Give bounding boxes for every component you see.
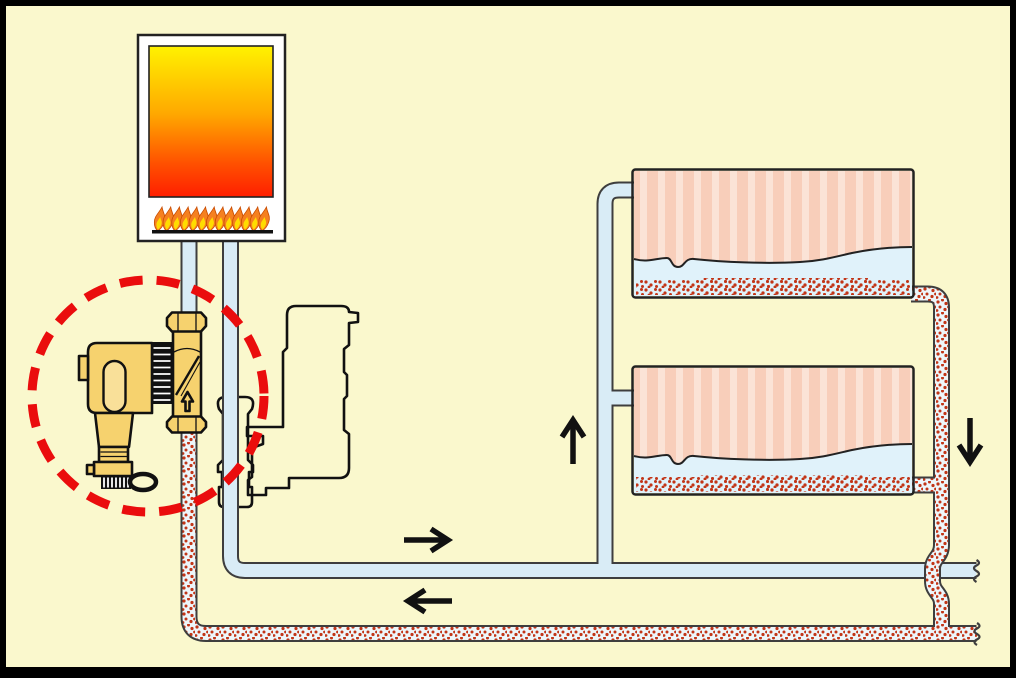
filter-thread-collar [99, 447, 128, 462]
boiler-heat-gradient [149, 46, 273, 197]
diagram-stage: Central heating system diagram with inli… [0, 0, 1016, 678]
filter-drain-nub [87, 465, 94, 474]
sludge-deposit-dense [700, 475, 870, 492]
filter-end-cap [79, 356, 88, 380]
filter-drain-body [94, 462, 132, 476]
burner-line [152, 230, 273, 234]
filter-vent-capsule [104, 361, 126, 412]
sludge-deposit-dense [700, 278, 870, 295]
boiler [138, 35, 285, 241]
radiator-2 [633, 367, 914, 495]
filter-bottom-nut [167, 417, 206, 433]
filter-magnet-chamber [95, 413, 133, 447]
filter-drain-knurl [101, 476, 131, 489]
radiator-1 [633, 170, 914, 298]
heating-system-diagram [0, 0, 1016, 678]
filter-lock-ring [152, 342, 172, 404]
filter-top-nut [167, 313, 206, 332]
